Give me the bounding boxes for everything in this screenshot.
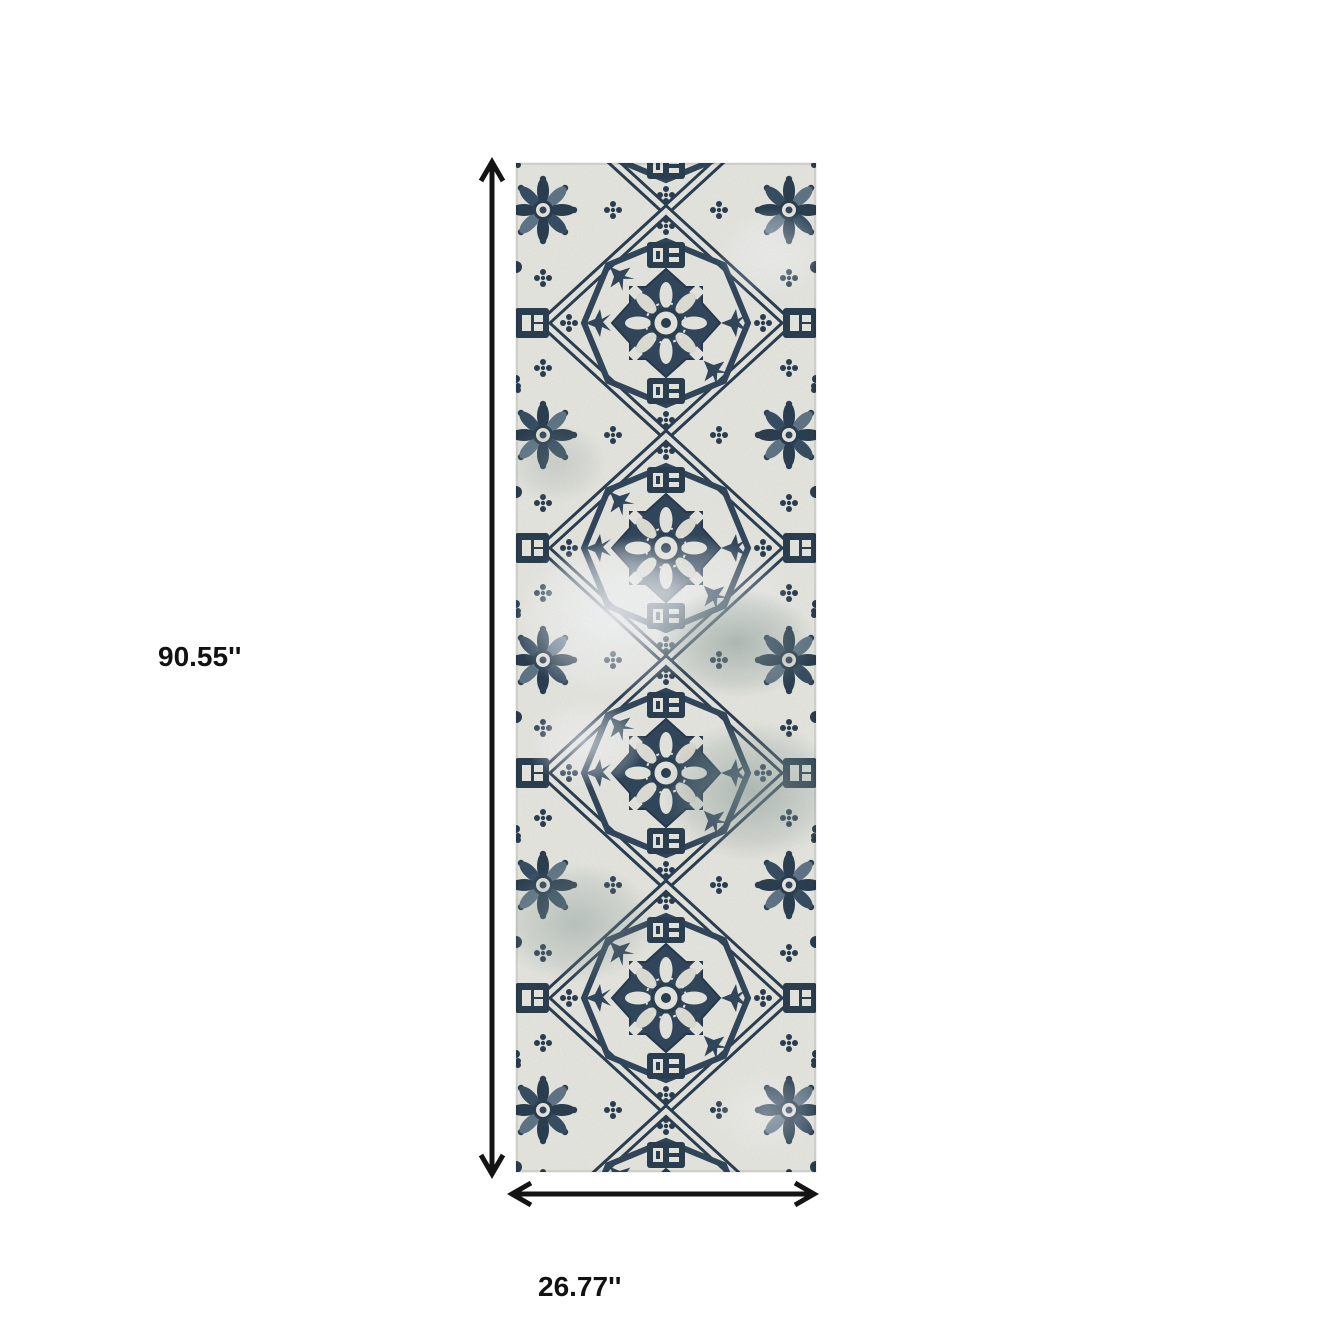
height-dimension-label: 90.55''	[158, 641, 241, 673]
height-dimension-arrow	[477, 156, 507, 1180]
rug-image	[516, 163, 816, 1172]
width-dimension-label: 26.77''	[538, 1271, 621, 1303]
width-dimension-arrow	[506, 1179, 820, 1209]
product-dimension-diagram: 90.55'' 26.77''	[0, 0, 1331, 1331]
